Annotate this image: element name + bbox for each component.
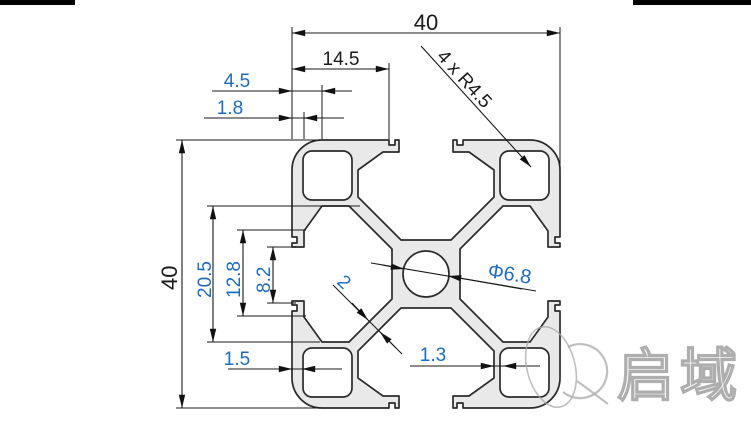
dim-slot-opening: 8.2 xyxy=(254,267,275,293)
corner-cavity-top-right xyxy=(500,151,549,200)
dim-overall-height: 40 xyxy=(157,266,182,290)
dim-web-thickness: 2 xyxy=(333,271,355,294)
logo-swoosh-icon xyxy=(563,344,607,398)
dim-slot-cavity-width: 12.8 xyxy=(224,261,245,298)
dim-inner-wall: 1.3 xyxy=(420,345,446,366)
corner-cavity-top-left xyxy=(303,151,352,200)
brand-watermark-text: 启域 xyxy=(617,330,751,412)
corner-cavity-bottom-right xyxy=(500,348,549,397)
dim-step-depth: 4.5 xyxy=(224,71,250,92)
dim-overall-width: 40 xyxy=(414,10,438,35)
dim-lip-thickness: 1.8 xyxy=(217,98,243,119)
dim-slot-span: 20.5 xyxy=(195,261,216,298)
dim-corner-radius: 4 x R4.5 xyxy=(432,46,495,112)
technical-drawing-canvas: 40 14.5 4.5 1.8 4 x R4.5 40 20.5 12.8 8.… xyxy=(0,0,751,428)
center-bore-hole xyxy=(403,251,449,297)
dim-outer-wall: 1.5 xyxy=(224,349,250,370)
corner-cavity-bottom-left xyxy=(303,348,352,397)
dim-slot-edge-offset: 14.5 xyxy=(323,49,360,70)
